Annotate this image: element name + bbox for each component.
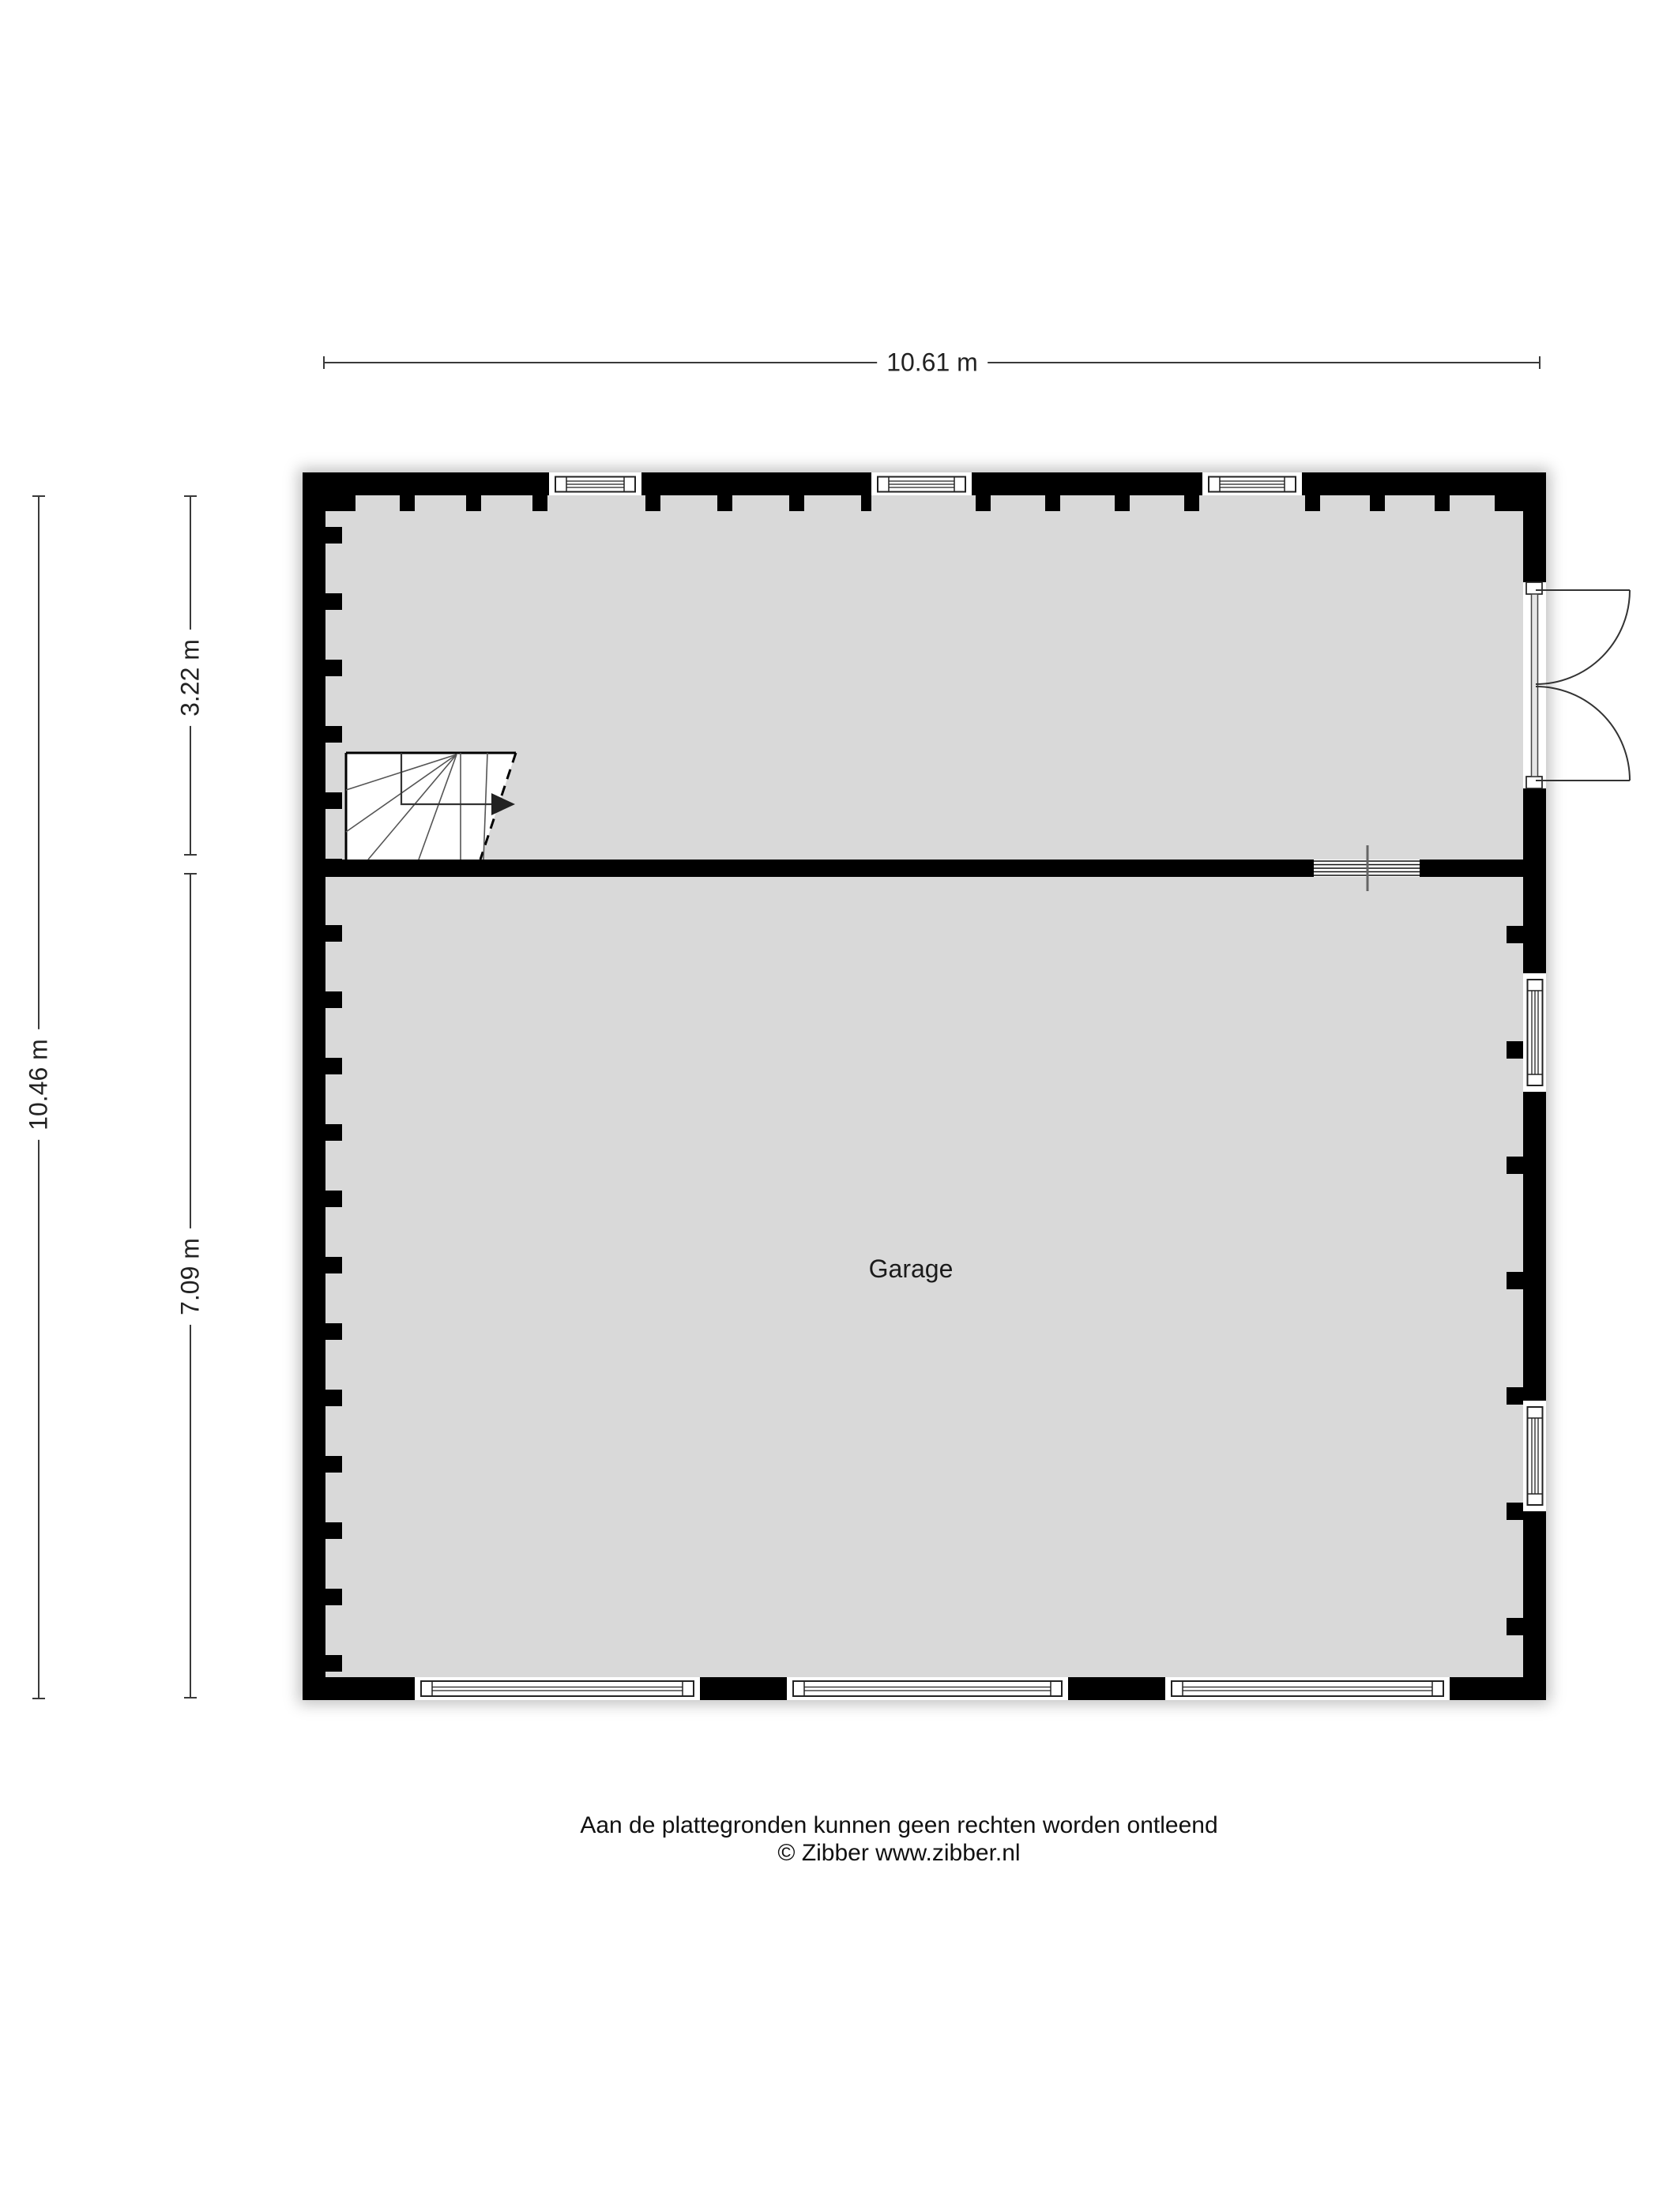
stair-direction-arrow	[491, 793, 515, 815]
stairs	[346, 753, 516, 860]
window-bottom-2	[787, 1677, 1068, 1700]
window-right-2	[1523, 1401, 1546, 1511]
window-bottom-1	[415, 1677, 700, 1700]
footer: Aan de plattegronden kunnen geen rechten…	[504, 1812, 1294, 1867]
window-divider	[1314, 845, 1420, 891]
footer-disclaimer: Aan de plattegronden kunnen geen rechten…	[504, 1812, 1294, 1840]
window-bottom-3	[1165, 1677, 1450, 1700]
floor-plan-page: 10.61 m 10.46 m 3.22 m 7.09 m	[0, 0, 1659, 2212]
room-label-garage: Garage	[832, 1255, 990, 1284]
window-top-3	[1202, 472, 1302, 495]
window-top-2	[871, 472, 972, 495]
window-right-1	[1523, 973, 1546, 1092]
footer-copyright: © Zibber www.zibber.nl	[504, 1840, 1294, 1868]
door-double-right	[1523, 582, 1630, 788]
window-top-1	[549, 472, 641, 495]
plan-symbols-layer	[0, 0, 1659, 2212]
